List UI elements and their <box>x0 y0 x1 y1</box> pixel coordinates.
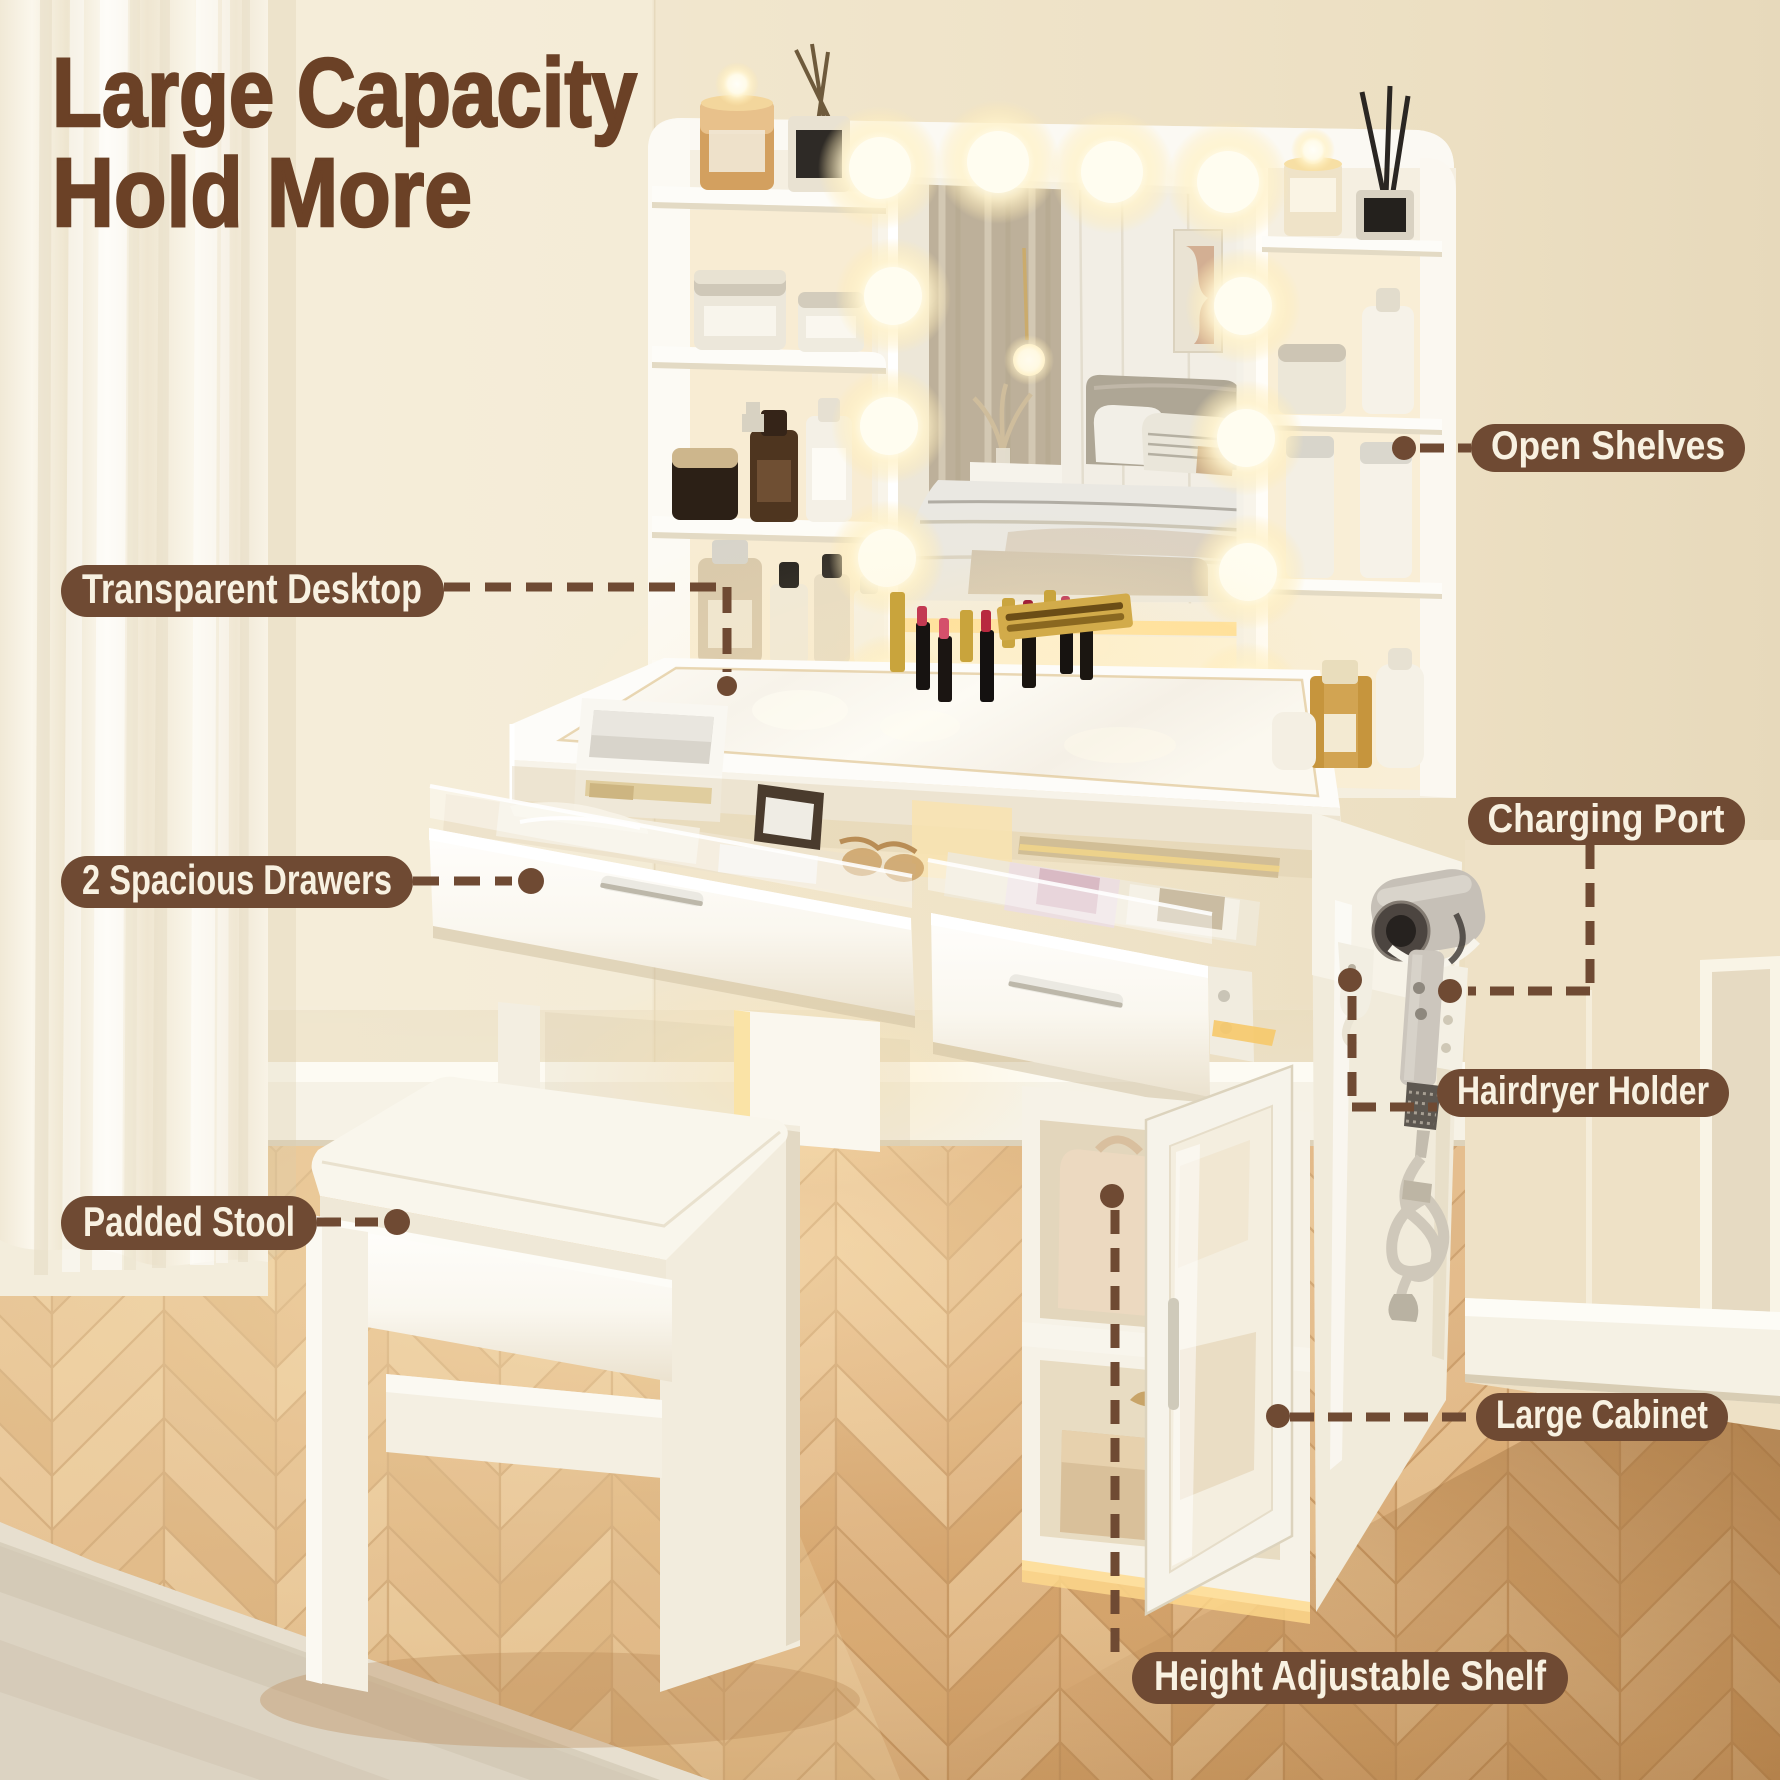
svg-text:Large Capacity: Large Capacity <box>52 38 637 147</box>
svg-text:Hold More: Hold More <box>52 138 472 247</box>
svg-text:2 Spacious Drawers: 2 Spacious Drawers <box>82 856 392 903</box>
svg-text:Padded Stool: Padded Stool <box>83 1198 295 1245</box>
svg-text:Height Adjustable Shelf: Height Adjustable Shelf <box>1154 1652 1547 1699</box>
svg-text:Open Shelves: Open Shelves <box>1491 424 1725 468</box>
svg-text:Large Cabinet: Large Cabinet <box>1496 1393 1708 1437</box>
svg-text:Transparent Desktop: Transparent Desktop <box>82 565 422 612</box>
svg-text:Charging Port: Charging Port <box>1488 797 1725 841</box>
svg-text:Hairdryer Holder: Hairdryer Holder <box>1457 1069 1709 1113</box>
